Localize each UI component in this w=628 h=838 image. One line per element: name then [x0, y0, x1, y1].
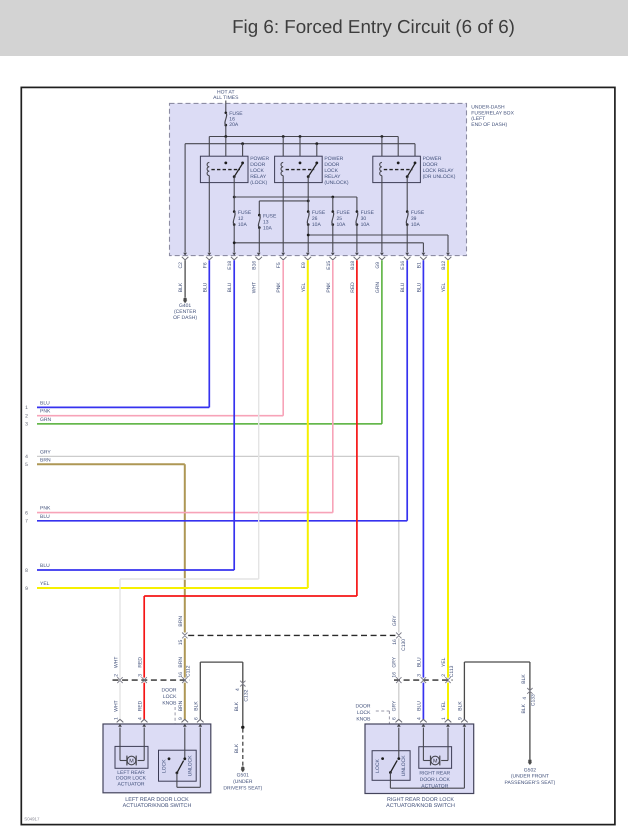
- svg-text:3: 3: [25, 422, 28, 428]
- svg-text:GRY: GRY: [392, 700, 398, 711]
- svg-text:4: 4: [522, 697, 528, 700]
- svg-text:KNOB: KNOB: [162, 701, 177, 707]
- svg-text:3: 3: [416, 674, 422, 677]
- svg-text:RIGHT REAR: RIGHT REAR: [419, 771, 450, 777]
- svg-text:16: 16: [178, 672, 184, 678]
- svg-text:BLK: BLK: [178, 282, 184, 292]
- svg-text:E16: E16: [400, 261, 406, 270]
- svg-text:4: 4: [25, 454, 28, 460]
- svg-text:B16: B16: [252, 261, 258, 270]
- svg-text:RED: RED: [350, 282, 356, 293]
- svg-text:BLU: BLU: [227, 282, 233, 292]
- svg-text:BRN: BRN: [40, 457, 51, 463]
- svg-text:BLK: BLK: [521, 703, 527, 713]
- svg-text:B12: B12: [441, 261, 447, 270]
- svg-text:GRN: GRN: [375, 282, 381, 294]
- svg-text:WHT: WHT: [113, 657, 119, 668]
- svg-text:9: 9: [457, 717, 463, 720]
- svg-text:Fig 6: Forced Entry Circuit (6: Fig 6: Forced Entry Circuit (6 of 6): [232, 16, 515, 37]
- svg-text:RED: RED: [138, 700, 144, 711]
- svg-text:20A: 20A: [229, 122, 239, 128]
- svg-text:BLK: BLK: [457, 701, 463, 711]
- svg-text:1: 1: [113, 717, 119, 720]
- svg-text:BLU: BLU: [40, 563, 50, 569]
- svg-text:10A: 10A: [411, 222, 421, 228]
- svg-text:LOCK: LOCK: [161, 759, 167, 773]
- svg-text:YEL: YEL: [40, 581, 50, 587]
- svg-text:PNK: PNK: [276, 282, 282, 293]
- svg-text:6: 6: [194, 717, 200, 720]
- svg-text:YEL: YEL: [441, 701, 447, 711]
- svg-text:(DR UNLOCK): (DR UNLOCK): [423, 174, 456, 180]
- svg-text:G9: G9: [375, 262, 381, 269]
- svg-text:DOOR: DOOR: [162, 688, 177, 694]
- svg-text:S04917: S04917: [24, 817, 40, 822]
- svg-text:F6: F6: [202, 262, 208, 268]
- svg-text:(UNDER: (UNDER: [233, 779, 253, 785]
- svg-text:M: M: [129, 759, 134, 765]
- svg-text:B18: B18: [350, 261, 356, 270]
- svg-text:BLK: BLK: [521, 674, 527, 684]
- svg-text:6: 6: [392, 717, 398, 720]
- svg-text:LOCK: LOCK: [357, 710, 371, 716]
- svg-text:E18: E18: [227, 261, 233, 270]
- svg-text:YEL: YEL: [301, 283, 307, 293]
- svg-text:LEFT REAR DOOR LOCK: LEFT REAR DOOR LOCK: [125, 797, 189, 803]
- svg-text:G501: G501: [237, 773, 249, 779]
- svg-text:BRN: BRN: [178, 700, 184, 711]
- svg-text:OF DASH): OF DASH): [173, 315, 197, 321]
- svg-text:10A: 10A: [337, 222, 347, 228]
- svg-text:RED: RED: [138, 657, 144, 668]
- svg-text:15: 15: [178, 640, 184, 646]
- svg-text:RIGHT REAR DOOR LOCK: RIGHT REAR DOOR LOCK: [387, 797, 454, 803]
- svg-text:C133: C133: [531, 694, 537, 706]
- svg-text:PNK: PNK: [40, 506, 51, 512]
- svg-text:(LOCK): (LOCK): [250, 180, 267, 186]
- svg-text:DOOR: DOOR: [356, 704, 371, 710]
- svg-text:1: 1: [25, 405, 28, 411]
- svg-text:BLK: BLK: [194, 701, 200, 711]
- svg-text:8: 8: [25, 568, 28, 574]
- svg-text:GRY: GRY: [392, 615, 398, 626]
- svg-text:16: 16: [392, 639, 398, 645]
- svg-text:BLK: BLK: [234, 743, 240, 753]
- svg-text:DRIVER'S SEAT): DRIVER'S SEAT): [223, 785, 262, 791]
- svg-text:C112: C112: [186, 665, 192, 677]
- svg-text:1: 1: [441, 717, 447, 720]
- svg-text:END OF DASH): END OF DASH): [471, 122, 507, 128]
- svg-text:2: 2: [441, 674, 447, 677]
- svg-text:BLU: BLU: [416, 282, 422, 292]
- svg-text:M: M: [433, 759, 438, 765]
- svg-text:ACTUATOR/KNOB SWITCH: ACTUATOR/KNOB SWITCH: [123, 803, 192, 809]
- svg-text:3: 3: [138, 674, 144, 677]
- svg-text:UNLOCK: UNLOCK: [188, 755, 194, 777]
- svg-text:G502: G502: [524, 767, 536, 773]
- svg-text:2: 2: [25, 414, 28, 420]
- svg-text:LOCK: LOCK: [375, 759, 381, 773]
- svg-text:BLU: BLU: [202, 282, 208, 292]
- svg-text:10A: 10A: [312, 222, 322, 228]
- svg-text:PNK: PNK: [40, 409, 51, 415]
- svg-text:BLU: BLU: [416, 657, 422, 667]
- svg-text:C2: C2: [178, 262, 184, 269]
- svg-text:9: 9: [25, 586, 28, 592]
- svg-text:C130: C130: [401, 639, 407, 651]
- svg-text:10A: 10A: [263, 225, 273, 231]
- svg-text:10A: 10A: [361, 222, 371, 228]
- svg-text:C132: C132: [243, 689, 249, 701]
- svg-text:4: 4: [235, 688, 241, 691]
- svg-text:BLU: BLU: [40, 514, 50, 520]
- svg-text:GRY: GRY: [40, 449, 51, 455]
- svg-text:E9: E9: [301, 262, 307, 268]
- svg-text:BRN: BRN: [178, 616, 184, 627]
- svg-text:16: 16: [392, 672, 398, 678]
- svg-text:LOCK: LOCK: [163, 694, 177, 700]
- svg-text:PNK: PNK: [326, 282, 332, 293]
- svg-text:7: 7: [25, 519, 28, 525]
- svg-text:5: 5: [25, 462, 28, 468]
- svg-text:GRN: GRN: [40, 417, 52, 423]
- svg-text:BLK: BLK: [234, 701, 240, 711]
- svg-text:4: 4: [138, 717, 144, 720]
- svg-text:E15: E15: [326, 261, 332, 270]
- svg-text:C113: C113: [449, 665, 455, 677]
- svg-text:KNOB: KNOB: [356, 717, 371, 723]
- svg-text:BRN: BRN: [178, 657, 184, 668]
- svg-text:6: 6: [25, 510, 28, 516]
- svg-text:9: 9: [178, 717, 184, 720]
- svg-text:F5: F5: [276, 262, 282, 268]
- svg-text:BLU: BLU: [400, 282, 406, 292]
- svg-text:DOOR LOCK: DOOR LOCK: [420, 777, 451, 783]
- svg-text:B1: B1: [416, 262, 422, 268]
- svg-text:WHT: WHT: [252, 282, 258, 293]
- svg-text:4: 4: [416, 717, 422, 720]
- svg-text:ACTUATOR/KNOB SWITCH: ACTUATOR/KNOB SWITCH: [386, 803, 455, 809]
- svg-text:2: 2: [113, 674, 119, 677]
- svg-text:(UNDER FRONT: (UNDER FRONT: [511, 774, 549, 780]
- svg-text:ACTUATOR: ACTUATOR: [421, 783, 448, 789]
- svg-text:PASSENGER'S SEAT): PASSENGER'S SEAT): [505, 780, 556, 786]
- svg-text:BLU: BLU: [40, 400, 50, 406]
- svg-text:ALL TIMES: ALL TIMES: [213, 95, 239, 101]
- svg-text:WHT: WHT: [113, 700, 119, 711]
- svg-text:GRY: GRY: [392, 656, 398, 667]
- svg-text:10A: 10A: [238, 222, 248, 228]
- svg-text:(UNLOCK): (UNLOCK): [324, 180, 349, 186]
- svg-text:UNLOCK: UNLOCK: [401, 755, 407, 777]
- svg-text:YEL: YEL: [441, 657, 447, 667]
- svg-text:YEL: YEL: [441, 283, 447, 293]
- svg-text:BLU: BLU: [416, 701, 422, 711]
- svg-text:ACTUATOR: ACTUATOR: [117, 782, 144, 788]
